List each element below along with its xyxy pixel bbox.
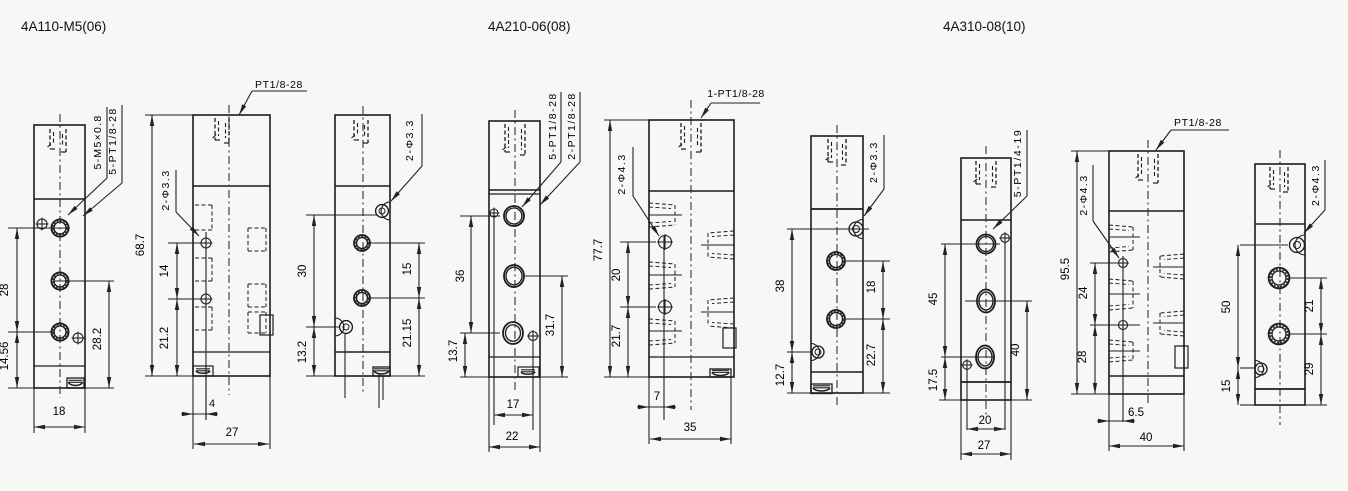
svg-text:27: 27 — [226, 427, 239, 439]
svg-text:PT1/8-28: PT1/8-28 — [1174, 117, 1222, 129]
svg-text:95.5: 95.5 — [1060, 258, 1072, 280]
svg-text:7: 7 — [654, 391, 660, 403]
svg-text:40: 40 — [1140, 432, 1153, 444]
svg-text:20: 20 — [611, 269, 623, 282]
svg-text:5-PT1/8-28: 5-PT1/8-28 — [547, 92, 559, 160]
svg-text:27: 27 — [978, 440, 991, 452]
svg-text:36: 36 — [455, 270, 467, 283]
svg-text:15: 15 — [402, 263, 414, 276]
svg-text:28.2: 28.2 — [92, 328, 104, 350]
svg-text:2-Φ3.3: 2-Φ3.3 — [868, 141, 880, 183]
svg-text:17.5: 17.5 — [928, 369, 940, 391]
svg-text:2-PT1/8-28: 2-PT1/8-28 — [566, 92, 578, 160]
svg-text:30: 30 — [297, 265, 309, 278]
svg-text:4A210-06(08): 4A210-06(08) — [488, 19, 571, 34]
svg-text:1-PT1/8-28: 1-PT1/8-28 — [707, 88, 765, 100]
svg-text:22: 22 — [506, 431, 519, 443]
svg-text:21: 21 — [1304, 300, 1316, 313]
svg-text:5-M5×0.8: 5-M5×0.8 — [92, 114, 104, 169]
svg-text:2-Φ4.3: 2-Φ4.3 — [616, 153, 628, 194]
svg-text:28: 28 — [0, 284, 11, 297]
svg-text:18: 18 — [53, 406, 66, 418]
svg-text:20: 20 — [979, 415, 992, 427]
svg-text:21.7: 21.7 — [611, 325, 623, 347]
svg-text:2-Φ4.3: 2-Φ4.3 — [1310, 164, 1322, 206]
svg-text:40: 40 — [1010, 344, 1022, 357]
svg-text:5-PT1/8-28: 5-PT1/8-28 — [107, 107, 119, 175]
svg-text:2-Φ4.3: 2-Φ4.3 — [1078, 174, 1090, 215]
svg-text:PT1/8-28: PT1/8-28 — [255, 79, 303, 91]
svg-text:45: 45 — [928, 293, 940, 306]
svg-text:68.7: 68.7 — [135, 234, 147, 256]
svg-text:21.15: 21.15 — [402, 319, 414, 348]
svg-text:4: 4 — [209, 398, 215, 410]
svg-text:12.7: 12.7 — [775, 364, 787, 386]
svg-text:77.7: 77.7 — [593, 239, 605, 261]
svg-text:6.5: 6.5 — [1128, 407, 1144, 419]
svg-text:31.7: 31.7 — [545, 314, 557, 336]
svg-text:29: 29 — [1304, 363, 1316, 376]
svg-text:50: 50 — [1221, 301, 1233, 314]
svg-text:22.7: 22.7 — [866, 344, 878, 366]
svg-text:35: 35 — [684, 422, 697, 434]
svg-text:4A310-08(10): 4A310-08(10) — [943, 19, 1026, 34]
svg-text:15: 15 — [1221, 380, 1233, 393]
svg-text:18: 18 — [866, 281, 878, 294]
svg-text:24: 24 — [1078, 286, 1090, 299]
svg-text:14.56: 14.56 — [0, 342, 11, 371]
svg-text:28: 28 — [1077, 351, 1089, 364]
svg-text:2-Φ3.3: 2-Φ3.3 — [404, 119, 416, 161]
svg-text:38: 38 — [775, 280, 787, 293]
svg-text:4A110-M5(06): 4A110-M5(06) — [21, 19, 106, 34]
svg-text:5-PT1/4-19: 5-PT1/4-19 — [1012, 129, 1024, 198]
svg-text:13.2: 13.2 — [297, 341, 309, 363]
svg-text:21.2: 21.2 — [159, 327, 171, 349]
svg-text:2-Φ3.3: 2-Φ3.3 — [160, 169, 172, 210]
svg-text:13.7: 13.7 — [448, 340, 460, 362]
svg-text:17: 17 — [507, 399, 520, 411]
svg-text:14: 14 — [159, 264, 171, 277]
